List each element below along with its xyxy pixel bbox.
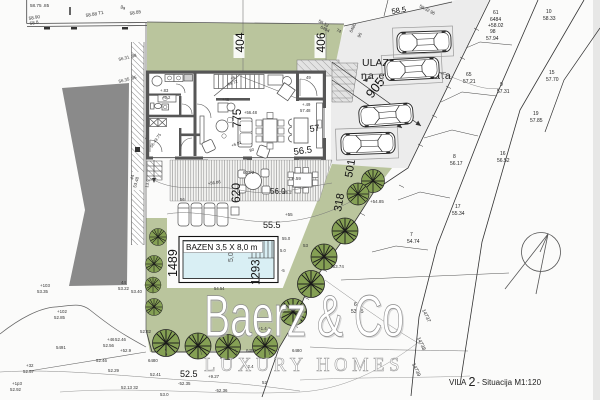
svg-text:58.75 .85: 58.75 .85 bbox=[30, 3, 50, 8]
svg-text:+55: +55 bbox=[285, 212, 293, 217]
svg-text:+54.85: +54.85 bbox=[370, 199, 384, 204]
svg-text:52.92: 52.92 bbox=[10, 387, 22, 392]
svg-text:53.40: 53.40 bbox=[131, 289, 143, 294]
svg-text:52.32: 52.32 bbox=[140, 329, 152, 334]
svg-text:52.56: 52.56 bbox=[103, 343, 115, 348]
svg-text:65: 65 bbox=[466, 72, 472, 78]
svg-text:57.21: 57.21 bbox=[463, 79, 476, 85]
svg-text:56.52: 56.52 bbox=[497, 158, 510, 164]
svg-text:53: 53 bbox=[303, 243, 309, 248]
svg-text:+1p3: +1p3 bbox=[12, 381, 22, 386]
svg-text:6480: 6480 bbox=[148, 358, 158, 363]
svg-text:52.5: 52.5 bbox=[180, 369, 198, 379]
svg-text:8: 8 bbox=[453, 154, 456, 160]
svg-text:15: 15 bbox=[549, 70, 555, 76]
svg-text:BAZEN 3,5 X 8,0 m: BAZEN 3,5 X 8,0 m bbox=[186, 243, 258, 252]
svg-text:404: 404 bbox=[233, 32, 247, 52]
svg-text:57.85: 57.85 bbox=[530, 118, 543, 124]
svg-text:57.31: 57.31 bbox=[497, 89, 510, 95]
svg-text:10: 10 bbox=[546, 9, 552, 15]
svg-text:1489: 1489 bbox=[166, 249, 180, 277]
svg-text:+46: +46 bbox=[222, 97, 230, 102]
svg-text:+32: +32 bbox=[26, 363, 34, 368]
svg-text:56.17: 56.17 bbox=[450, 161, 463, 167]
svg-text:+.83: +.83 bbox=[160, 88, 169, 93]
svg-text:5,0: 5,0 bbox=[228, 252, 235, 262]
svg-text:49: 49 bbox=[306, 75, 311, 80]
svg-text:+.49: +.49 bbox=[302, 102, 311, 107]
svg-text:57: 57 bbox=[309, 123, 320, 134]
svg-text:98: 98 bbox=[490, 29, 496, 35]
svg-text:+56.48: +56.48 bbox=[244, 110, 258, 115]
svg-text:- Situacija M1:120: - Situacija M1:120 bbox=[477, 378, 542, 387]
svg-text:Baerz & Co: Baerz & Co bbox=[204, 284, 404, 349]
svg-text:406: 406 bbox=[314, 32, 328, 52]
svg-text:52: 52 bbox=[262, 380, 267, 385]
svg-text:+102: +102 bbox=[57, 309, 67, 314]
svg-text:17: 17 bbox=[455, 204, 461, 210]
svg-text:LUXURY HOMES: LUXURY HOMES bbox=[204, 354, 404, 376]
svg-text:52.85: 52.85 bbox=[54, 315, 66, 320]
svg-text:58.33: 58.33 bbox=[543, 16, 556, 22]
svg-text:52.57: 52.57 bbox=[23, 369, 35, 374]
svg-text:620: 620 bbox=[229, 183, 243, 203]
svg-text:54.74: 54.74 bbox=[407, 239, 420, 245]
svg-text:53.22: 53.22 bbox=[118, 286, 130, 291]
svg-text:55.2: 55.2 bbox=[283, 190, 292, 195]
svg-text:VILA: VILA bbox=[449, 378, 467, 387]
svg-text:+103: +103 bbox=[40, 283, 50, 288]
svg-text:57.94: 57.94 bbox=[486, 36, 499, 42]
svg-text:9: 9 bbox=[500, 82, 503, 88]
svg-text:+46: +46 bbox=[107, 337, 115, 342]
svg-text:607/2: 607/2 bbox=[243, 170, 255, 175]
svg-text:1293: 1293 bbox=[251, 259, 263, 285]
svg-text:52.41: 52.41 bbox=[150, 372, 162, 377]
svg-text:55.34: 55.34 bbox=[452, 211, 465, 217]
svg-text:+52.9: +52.9 bbox=[120, 348, 132, 353]
svg-text:55.5: 55.5 bbox=[263, 220, 281, 230]
svg-text:5491: 5491 bbox=[56, 345, 66, 350]
svg-text:52.13 32: 52.13 32 bbox=[121, 385, 139, 390]
svg-text:7: 7 bbox=[410, 232, 413, 238]
svg-text:19: 19 bbox=[533, 111, 539, 117]
svg-text:52.29: 52.29 bbox=[108, 368, 120, 373]
svg-text:5.0: 5.0 bbox=[280, 248, 286, 253]
svg-text:-52.35: -52.35 bbox=[178, 381, 191, 386]
svg-text:2: 2 bbox=[469, 375, 476, 389]
svg-text:57.48: 57.48 bbox=[300, 108, 311, 113]
svg-text:775: 775 bbox=[232, 109, 244, 128]
svg-text:56: 56 bbox=[180, 197, 185, 202]
svg-text:55.0: 55.0 bbox=[282, 236, 291, 241]
svg-text:52.46: 52.46 bbox=[115, 337, 127, 342]
svg-text:52.46: 52.46 bbox=[96, 358, 108, 363]
svg-text:53.0: 53.0 bbox=[160, 392, 169, 397]
svg-text:+.59: +.59 bbox=[292, 176, 301, 181]
svg-text:57.70: 57.70 bbox=[546, 77, 559, 83]
svg-text:16: 16 bbox=[500, 151, 506, 157]
svg-text:44: 44 bbox=[121, 280, 126, 285]
svg-text:53.35: 53.35 bbox=[37, 289, 49, 294]
svg-text:+6.2: +6.2 bbox=[162, 95, 171, 100]
svg-text:+53.74: +53.74 bbox=[330, 264, 344, 269]
svg-text:-52.36: -52.36 bbox=[215, 388, 228, 393]
svg-text:61: 61 bbox=[493, 10, 499, 16]
